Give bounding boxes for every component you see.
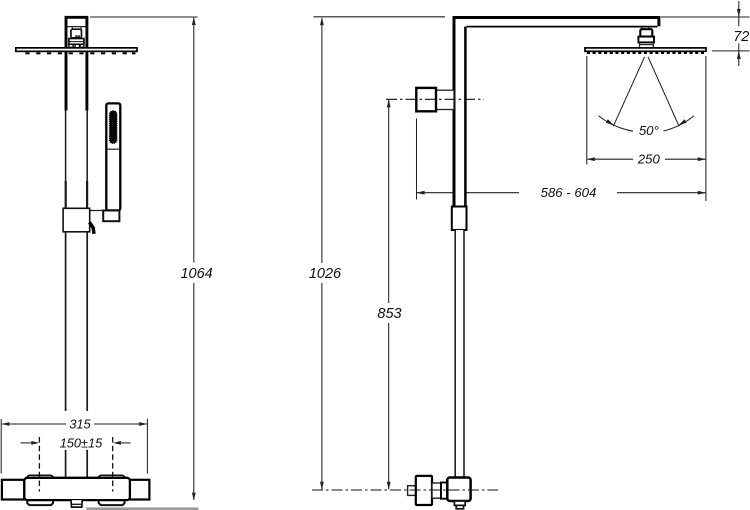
svg-text:150±15: 150±15 — [60, 435, 103, 450]
svg-text:72: 72 — [733, 29, 749, 45]
svg-text:1026: 1026 — [309, 266, 342, 282]
svg-text:250: 250 — [637, 152, 661, 167]
svg-text:853: 853 — [377, 306, 401, 322]
svg-text:50°: 50° — [639, 123, 659, 138]
svg-text:1064: 1064 — [180, 266, 212, 282]
svg-text:586 - 604: 586 - 604 — [541, 185, 597, 200]
svg-text:315: 315 — [69, 417, 91, 432]
